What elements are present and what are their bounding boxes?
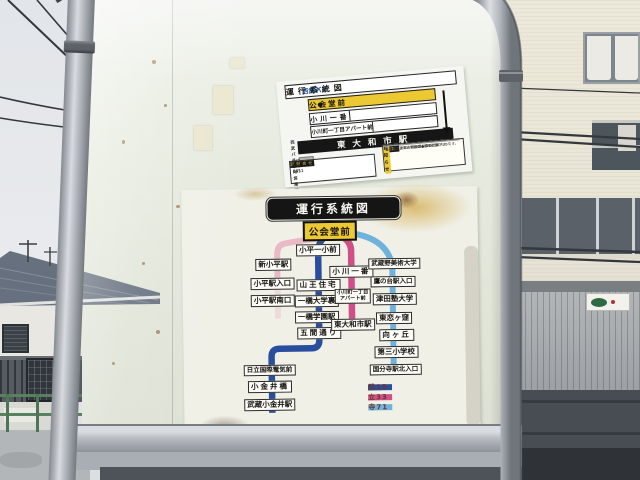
route-summary-sign: 西武バス 運行系統図 公会堂前 ● 小川一番 小川町一丁目アパート前 東大和市駅… — [276, 66, 473, 188]
pole-clamp — [64, 40, 95, 53]
stop-label: 鷹の台駅入口 — [370, 276, 415, 288]
stop-label: 第三小学校 — [374, 346, 418, 359]
stop-label: 東大和市駅 — [331, 318, 375, 331]
stop-label: 国分寺駅北入口 — [370, 364, 422, 376]
map-current-stop: 公会堂前 — [303, 221, 357, 242]
route-legend: 武19 立33 寺71 — [368, 383, 438, 412]
direction-arrow — [442, 90, 447, 128]
stop-label: 新小平駅 — [255, 259, 291, 272]
stop-label: 武蔵小金井駅 — [244, 399, 295, 412]
stop-label: 向ヶ丘 — [379, 329, 414, 342]
stop-label: 小川一番 — [329, 265, 373, 278]
stop-label: 津田塾大学 — [373, 293, 417, 306]
bus-stop-photo: 西武バス 運行系統図 公会堂前 ● 小川一番 小川町一丁目アパート前 東大和市駅… — [0, 0, 640, 480]
top-sign-title: 運行系統図 — [285, 81, 346, 97]
frame-bottom-shadow — [100, 467, 522, 480]
legend-row: 立33 — [368, 393, 438, 402]
stop-label: 武蔵野美術大学 — [368, 258, 420, 270]
stop-label: 小平駅入口 — [250, 278, 294, 291]
legend-row: 武19 — [368, 383, 438, 392]
stop-label: 日立国際電気前 — [244, 365, 296, 377]
notice-box: 重要 お知らせ この度、小平市公会堂工事のため 乗り場変更は、裏面の●印をご覧下… — [382, 138, 466, 172]
legend-row: 寺71 — [368, 403, 438, 412]
stop-label: 小平駅南口 — [251, 295, 295, 308]
contact-row: 西武バス 小平営業所 042-342-3411 — [290, 162, 295, 170]
stop-label: 一橋大学裏 — [295, 295, 339, 308]
frame-bottom-rail — [54, 424, 522, 452]
map-title: 運行系統図 — [267, 197, 399, 220]
contact-box: お問合せ 西武バス 立川営業所 042-524-0851 西武バス 小平営業所 … — [289, 154, 377, 184]
direction-arrowhead — [443, 127, 451, 134]
stop-label: 東恋ヶ窪 — [376, 312, 412, 325]
route-map-sign: 運行系統図 公会堂前 新小平駅 小平駅入口 小平駅南口 小平一小前 山王住宅 一… — [181, 186, 481, 444]
stop-label: 小平一小前 — [296, 244, 340, 257]
stop-label: 小川町一丁目アパート前 — [335, 288, 371, 304]
stop-label: 小金井橋 — [248, 381, 292, 394]
